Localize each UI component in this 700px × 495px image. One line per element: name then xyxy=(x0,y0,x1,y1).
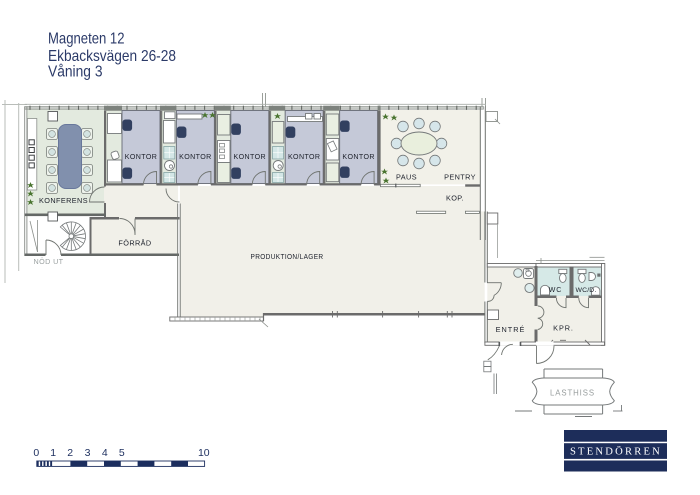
svg-text:LASTHISS: LASTHISS xyxy=(550,389,595,398)
svg-text:5: 5 xyxy=(119,447,125,459)
svg-text:PRODUKTION/LAGER: PRODUKTION/LAGER xyxy=(251,252,324,261)
svg-text:KPR.: KPR. xyxy=(553,324,574,333)
svg-text:PENTRY: PENTRY xyxy=(444,173,476,182)
svg-text:KOP.: KOP. xyxy=(446,194,464,203)
svg-text:KONTOR: KONTOR xyxy=(234,152,267,161)
svg-text:WC: WC xyxy=(549,287,562,294)
svg-text:1: 1 xyxy=(50,447,56,459)
svg-text:Våning 3: Våning 3 xyxy=(48,63,103,81)
svg-text:KONTOR: KONTOR xyxy=(125,152,158,161)
svg-text:KONTOR: KONTOR xyxy=(342,152,375,161)
svg-text:KONFERENS: KONFERENS xyxy=(39,196,88,205)
svg-text:KONTOR: KONTOR xyxy=(179,152,212,161)
svg-text:10: 10 xyxy=(198,447,210,459)
svg-text:ENTRÉ: ENTRÉ xyxy=(496,325,526,334)
svg-text:Ekbacksvägen 26-28: Ekbacksvägen 26-28 xyxy=(48,48,176,65)
svg-text:Magneten 12: Magneten 12 xyxy=(48,31,125,48)
svg-text:NÖD UT: NÖD UT xyxy=(34,257,64,266)
svg-text:3: 3 xyxy=(85,447,91,459)
svg-text:KONTOR: KONTOR xyxy=(288,152,321,161)
svg-text:4: 4 xyxy=(102,447,108,459)
svg-text:FÖRRÅD: FÖRRÅD xyxy=(118,239,151,248)
svg-text:2: 2 xyxy=(67,447,73,459)
svg-text:WC/D.: WC/D. xyxy=(575,287,596,294)
svg-text:STENDÖRREN: STENDÖRREN xyxy=(570,446,662,458)
svg-text:0: 0 xyxy=(33,447,39,459)
svg-text:PAUS: PAUS xyxy=(396,173,417,182)
